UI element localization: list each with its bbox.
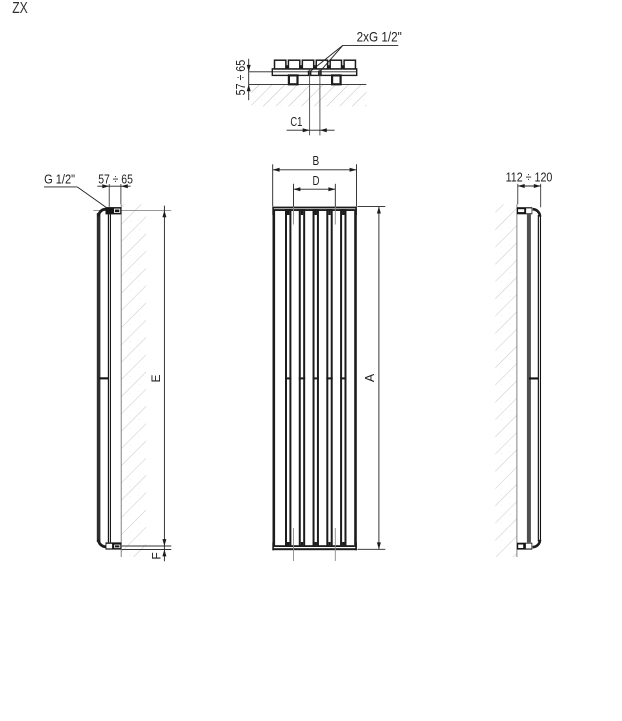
svg-text:112 ÷ 120: 112 ÷ 120 — [506, 170, 553, 184]
svg-text:A: A — [363, 373, 377, 382]
svg-text:2xG 1/2": 2xG 1/2" — [357, 29, 402, 45]
svg-text:E: E — [149, 374, 163, 382]
svg-text:C1: C1 — [290, 114, 302, 129]
svg-text:57 ÷ 65: 57 ÷ 65 — [234, 60, 248, 96]
svg-text:57 ÷ 65: 57 ÷ 65 — [98, 172, 133, 186]
svg-text:G 1/2": G 1/2" — [44, 172, 75, 186]
svg-text:B: B — [313, 153, 320, 168]
svg-text:F: F — [149, 552, 163, 559]
svg-text:ZX: ZX — [12, 0, 28, 17]
svg-text:D: D — [313, 173, 320, 188]
